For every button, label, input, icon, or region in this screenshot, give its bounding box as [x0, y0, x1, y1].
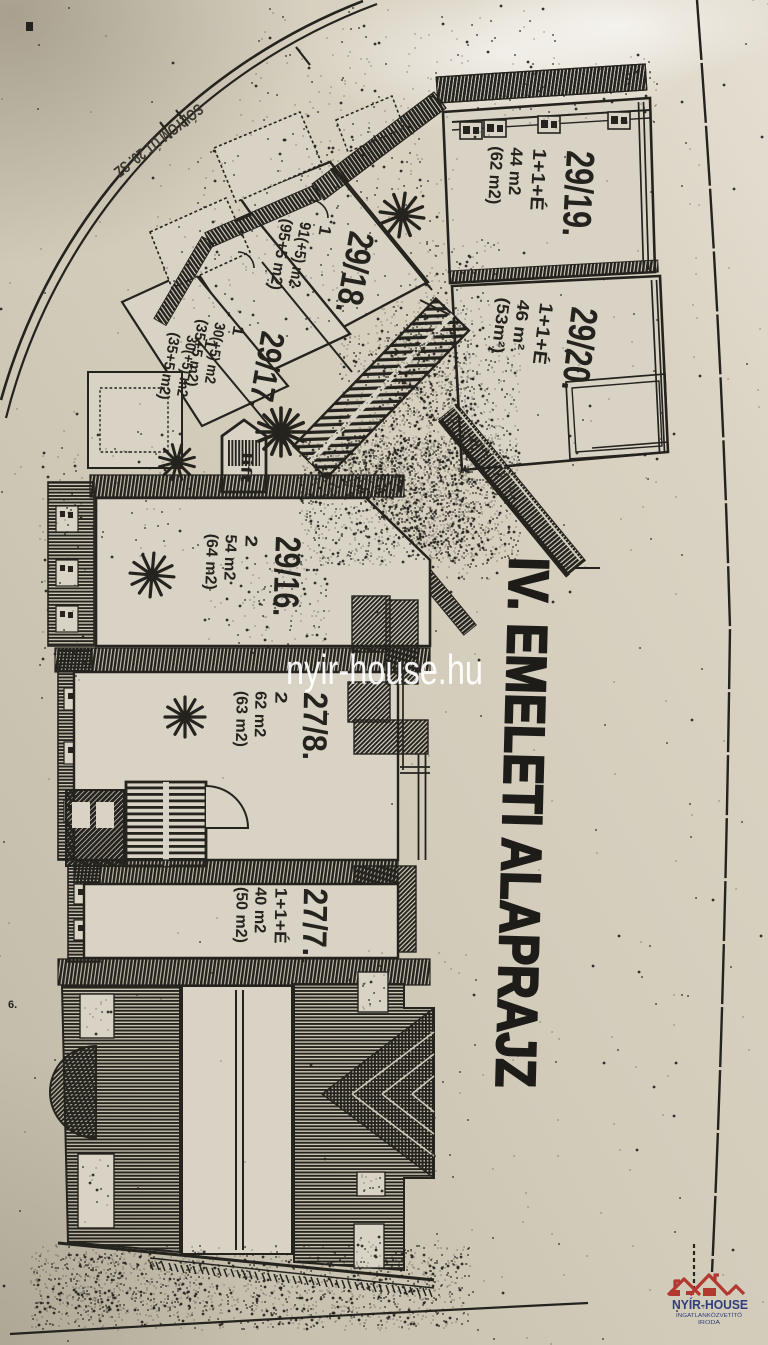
svg-text:NYÍR-HOUSE: NYÍR-HOUSE [672, 1297, 748, 1312]
svg-text:1+1+É: 1+1+É [525, 148, 550, 211]
svg-text:29/16.: 29/16. [265, 536, 309, 617]
svg-text:2: 2 [241, 535, 260, 548]
svg-text:1+1+É: 1+1+É [270, 887, 290, 943]
svg-text:2: 2 [271, 691, 290, 703]
svg-text:29/19.: 29/19. [554, 150, 602, 238]
svg-text:44 m2: 44 m2 [505, 147, 526, 196]
svg-text:62 m2: 62 m2 [251, 691, 269, 737]
svg-text:nyir-house.hu: nyir-house.hu [286, 646, 483, 693]
svg-text:6.: 6. [8, 999, 17, 1011]
svg-text:IRODA: IRODA [698, 1320, 720, 1326]
svg-text:(64 m2): (64 m2) [201, 533, 220, 590]
svg-text:54 m2: 54 m2 [220, 534, 239, 581]
svg-text:27/8.: 27/8. [295, 692, 334, 761]
svg-text:(50 m2): (50 m2) [232, 887, 250, 943]
svg-text:(62 m2): (62 m2) [484, 146, 506, 205]
svg-text:27/7.: 27/7. [295, 888, 334, 957]
svg-text:(63 m2): (63 m2) [232, 691, 250, 747]
svg-text:INGATLANKÖZVETÍTŐ: INGATLANKÖZVETÍTŐ [676, 1312, 743, 1319]
svg-text:40 m2: 40 m2 [251, 887, 269, 933]
